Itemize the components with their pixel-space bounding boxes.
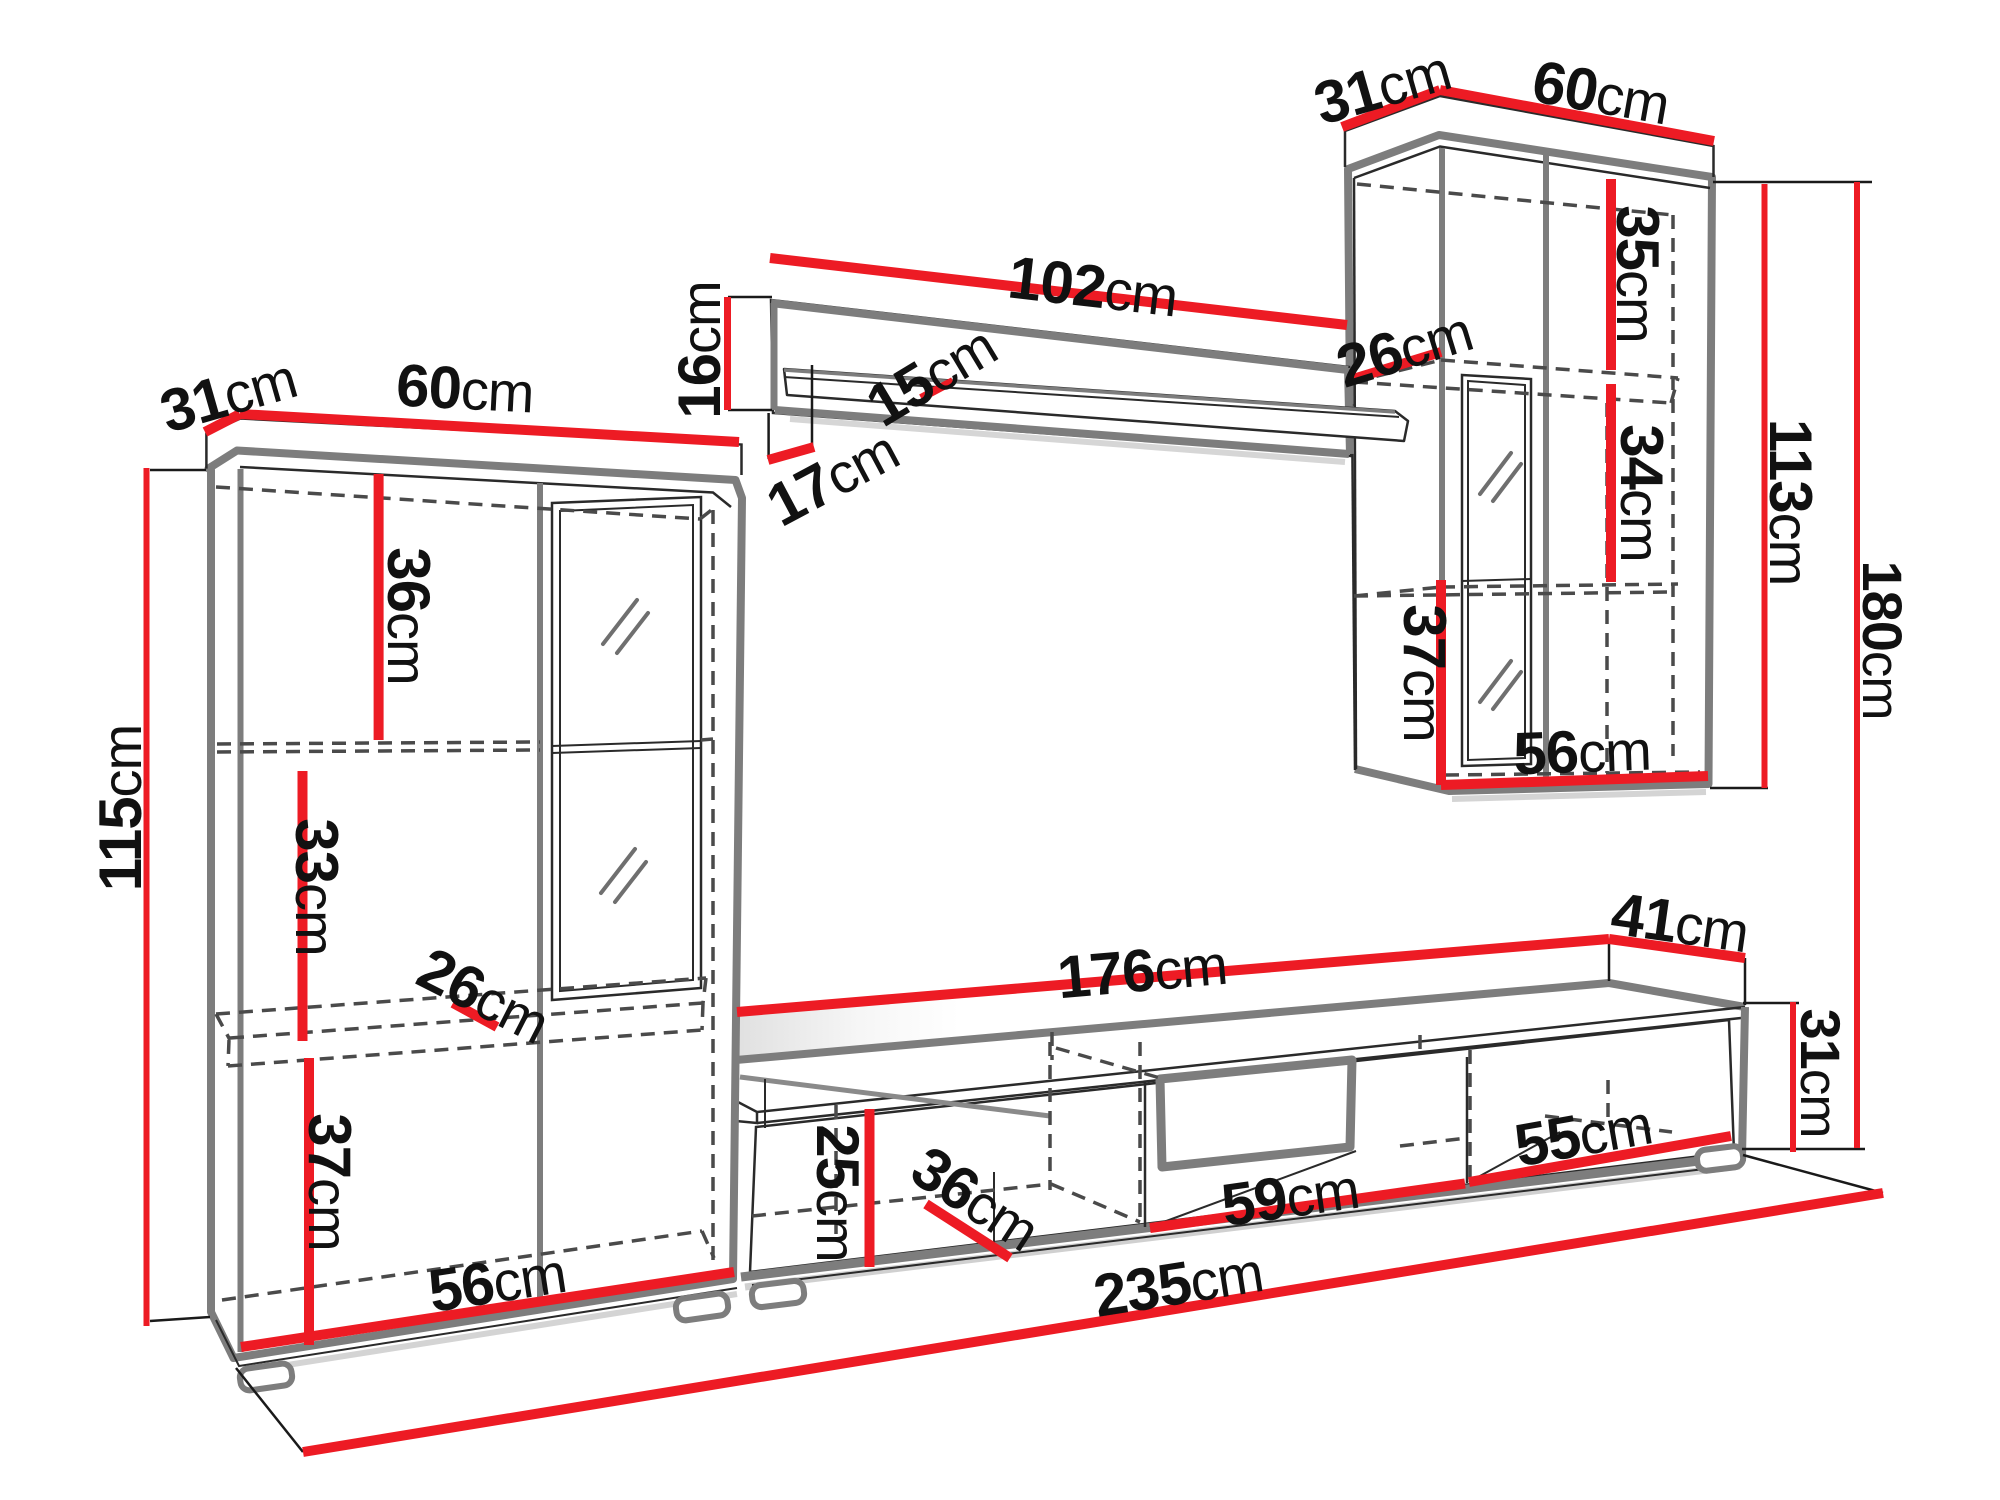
svg-text:33cm: 33cm [283, 818, 350, 955]
svg-text:31cm: 31cm [1789, 1009, 1852, 1138]
svg-text:36cm: 36cm [375, 547, 442, 684]
svg-text:60cm: 60cm [395, 351, 536, 425]
svg-text:16cm: 16cm [666, 281, 733, 418]
svg-text:35cm: 35cm [1604, 205, 1671, 342]
svg-text:37cm: 37cm [1391, 604, 1458, 741]
svg-text:180cm: 180cm [1851, 560, 1914, 719]
svg-text:37cm: 37cm [296, 1113, 363, 1250]
svg-text:115cm: 115cm [87, 725, 154, 891]
svg-text:113cm: 113cm [1757, 419, 1824, 585]
svg-text:25cm: 25cm [804, 1124, 871, 1261]
svg-text:34cm: 34cm [1608, 424, 1675, 561]
svg-text:56cm: 56cm [1512, 716, 1652, 788]
